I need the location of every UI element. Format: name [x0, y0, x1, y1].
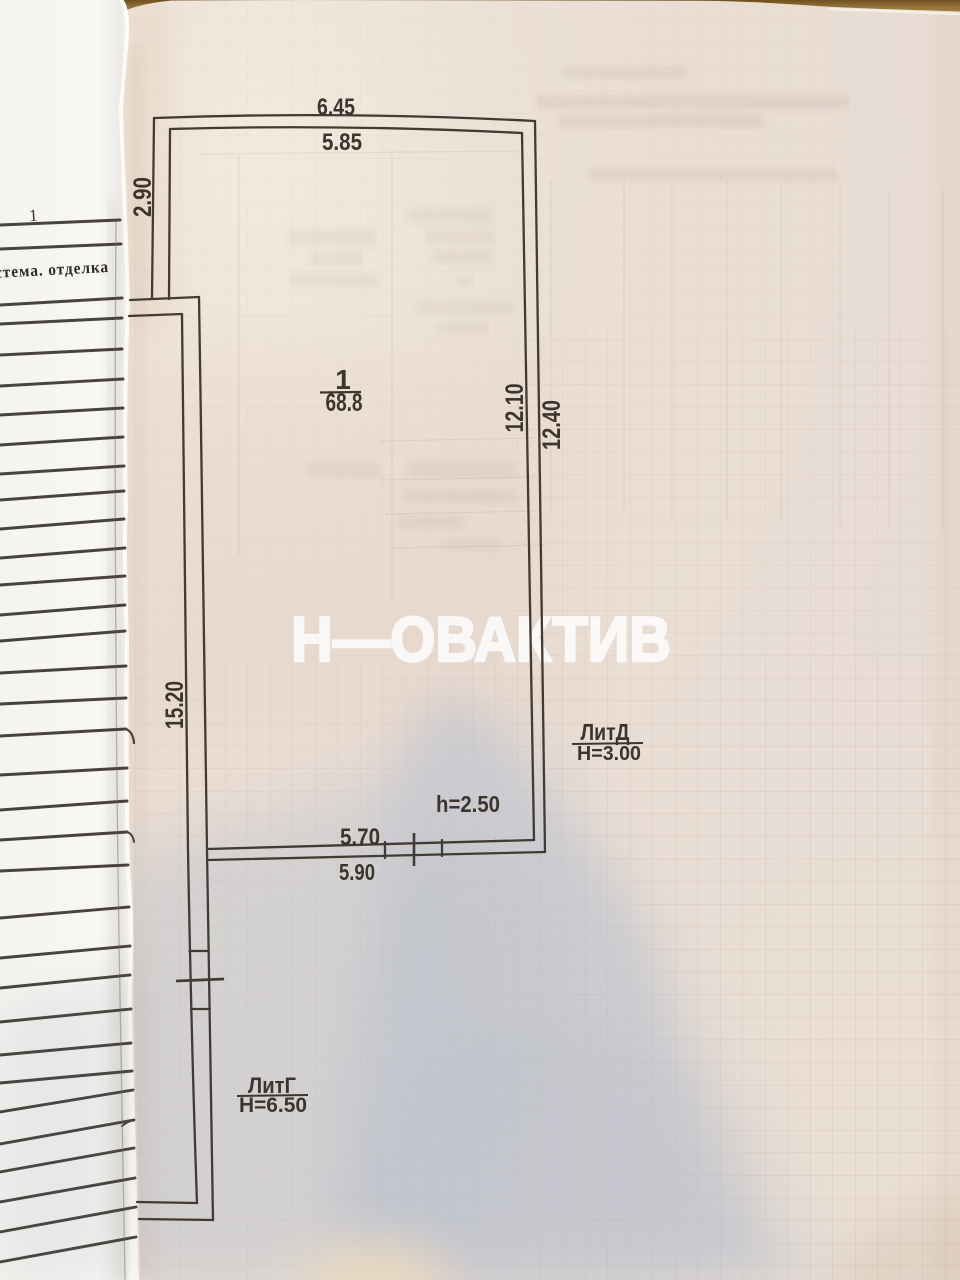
svg-text:6.45: 6.45: [317, 94, 355, 121]
svg-text:h=2.50: h=2.50: [436, 791, 500, 817]
svg-text:5.85: 5.85: [322, 129, 362, 156]
svg-text:1: 1: [29, 206, 38, 225]
svg-text:5.90: 5.90: [339, 859, 375, 885]
svg-text:12.40: 12.40: [538, 400, 566, 450]
svg-text:Н—ОВАКТИВ: Н—ОВАКТИВ: [291, 605, 671, 675]
svg-text:5.70: 5.70: [340, 824, 380, 851]
svg-text:12.10: 12.10: [501, 384, 529, 433]
svg-text:2.90: 2.90: [129, 177, 157, 217]
svg-text:Н=3.00: Н=3.00: [577, 742, 641, 765]
svg-text:15.20: 15.20: [161, 681, 189, 729]
